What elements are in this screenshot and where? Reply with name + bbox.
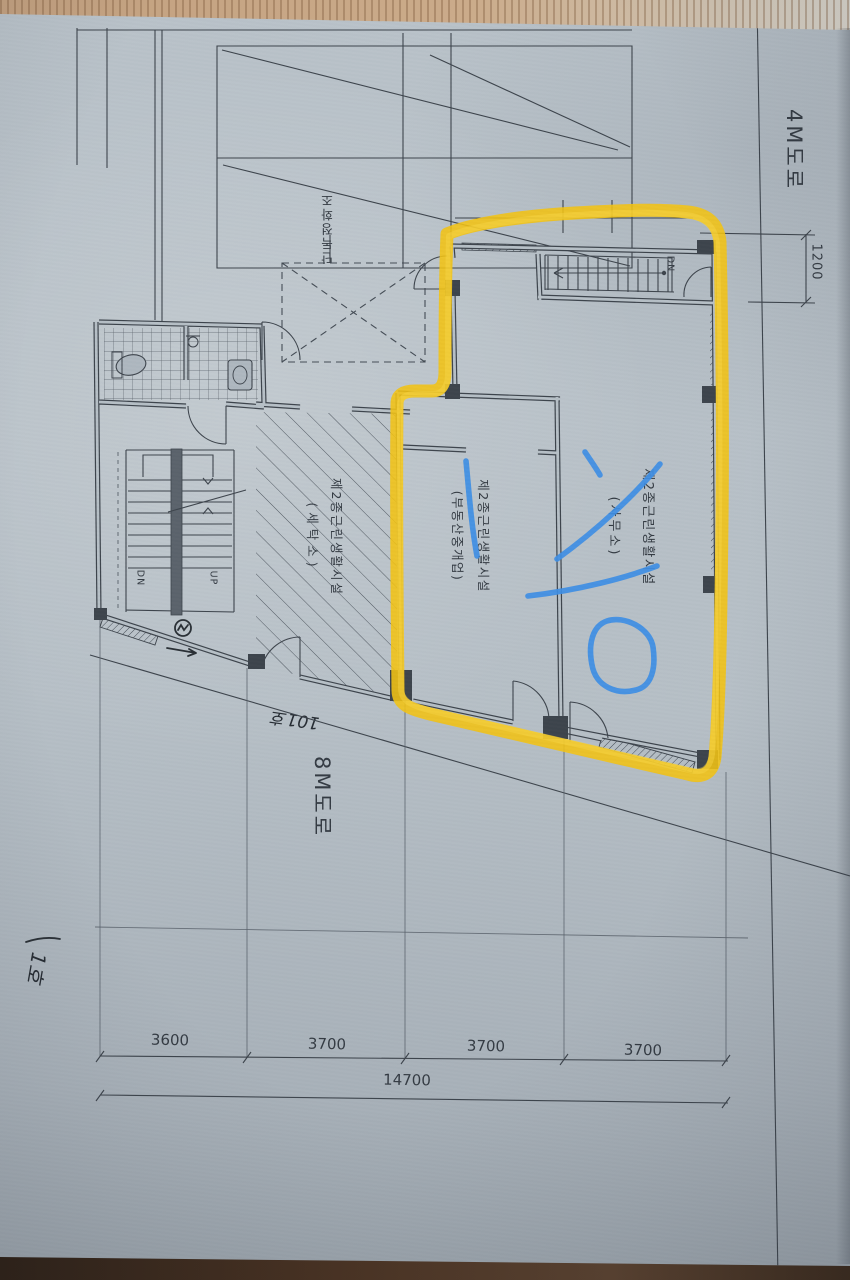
- floorplan-linework: [0, 0, 850, 1280]
- stair-rail: [171, 449, 182, 615]
- blue-diagonal-stroke-1: [557, 464, 660, 559]
- blue-diagonal-stroke-2: [528, 566, 657, 596]
- handwritten-pen-strokes: [26, 938, 60, 942]
- photo-of-floorplan: 4M도로 1200 단독정화조 제2종근린생활시설 (사무소) 제2종근린생활시…: [0, 0, 850, 1280]
- stairs-left: [126, 449, 246, 615]
- paper-edge-shadow: [836, 28, 850, 1264]
- blue-loop-mark: [591, 620, 654, 692]
- blue-underline-stroke: [466, 461, 477, 556]
- site-and-grid-lines: [77, 0, 850, 1280]
- stairs-upper: [545, 255, 711, 297]
- blueprint-paper: 4M도로 1200 단독정화조 제2종근린생활시설 (사무소) 제2종근린생활시…: [0, 0, 850, 1280]
- blue-short-dash: [585, 452, 600, 475]
- laundry-hatch-area: [256, 412, 397, 696]
- blue-pen-marks: [466, 452, 660, 691]
